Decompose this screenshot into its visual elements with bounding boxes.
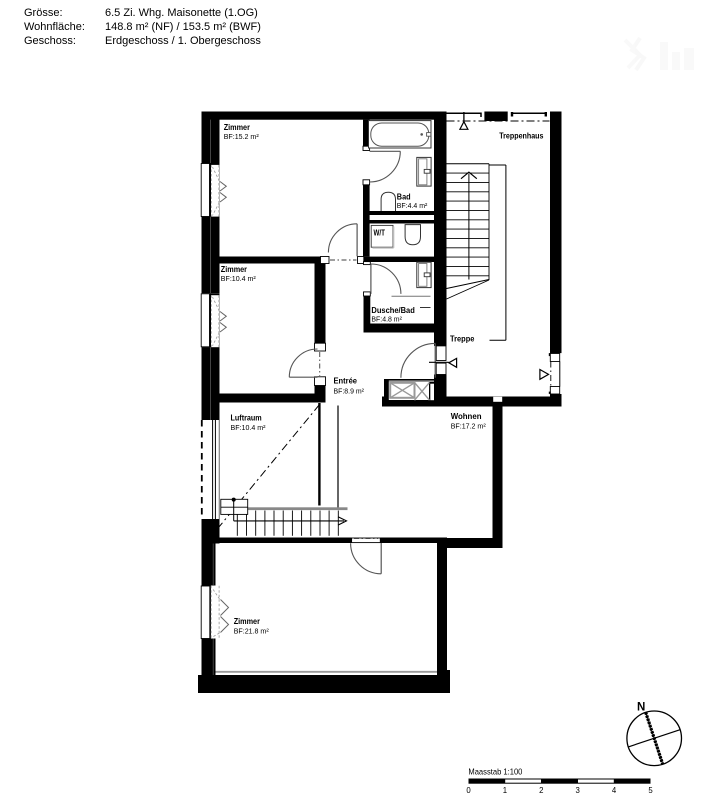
- svg-text:Entrée: Entrée: [334, 376, 358, 385]
- svg-text:6.5 Zi. Whg. Maisonette (1.OG): 6.5 Zi. Whg. Maisonette (1.OG): [105, 7, 258, 19]
- svg-text:3: 3: [576, 786, 580, 795]
- svg-text:Luftraum: Luftraum: [231, 414, 262, 423]
- svg-text:Treppenhaus: Treppenhaus: [499, 132, 544, 141]
- svg-text:Wohnfläche:: Wohnfläche:: [24, 21, 85, 33]
- svg-text:Zimmer: Zimmer: [234, 617, 261, 626]
- svg-text:2: 2: [539, 786, 543, 795]
- svg-text:Maasstab 1:100: Maasstab 1:100: [468, 767, 522, 777]
- svg-text:Erdgeschoss / 1. Obergeschoss: Erdgeschoss / 1. Obergeschoss: [105, 35, 261, 47]
- svg-text:Treppe: Treppe: [450, 334, 475, 343]
- svg-text:5: 5: [648, 786, 653, 795]
- svg-text:Dusche/Bad: Dusche/Bad: [371, 306, 414, 315]
- svg-text:Zimmer: Zimmer: [224, 123, 251, 132]
- svg-text:BF:10.4 m²: BF:10.4 m²: [231, 423, 267, 432]
- svg-text:Zimmer: Zimmer: [221, 265, 248, 274]
- svg-text:BF:15.2 m²: BF:15.2 m²: [224, 132, 260, 141]
- svg-text:BF:10.4 m²: BF:10.4 m²: [221, 274, 257, 283]
- svg-text:Geschoss:: Geschoss:: [24, 35, 76, 47]
- svg-text:BF:17.2 m²: BF:17.2 m²: [451, 421, 487, 430]
- svg-text:BF:8.9 m²: BF:8.9 m²: [334, 386, 365, 395]
- svg-text:Wohnen: Wohnen: [451, 412, 482, 421]
- svg-text:4: 4: [612, 786, 617, 795]
- svg-text:BF:4.8 m²: BF:4.8 m²: [371, 315, 402, 324]
- svg-text:W/T: W/T: [374, 228, 386, 237]
- svg-text:BF:4.4 m²: BF:4.4 m²: [397, 201, 428, 210]
- svg-text:1: 1: [503, 786, 507, 795]
- svg-text:0: 0: [466, 786, 471, 795]
- svg-text:Grösse:: Grösse:: [24, 7, 63, 19]
- svg-text:BF:21.8 m²: BF:21.8 m²: [234, 627, 270, 636]
- svg-text:148.8 m² (NF) / 153.5 m² (BWF): 148.8 m² (NF) / 153.5 m² (BWF): [105, 21, 261, 33]
- svg-text:N: N: [637, 702, 645, 714]
